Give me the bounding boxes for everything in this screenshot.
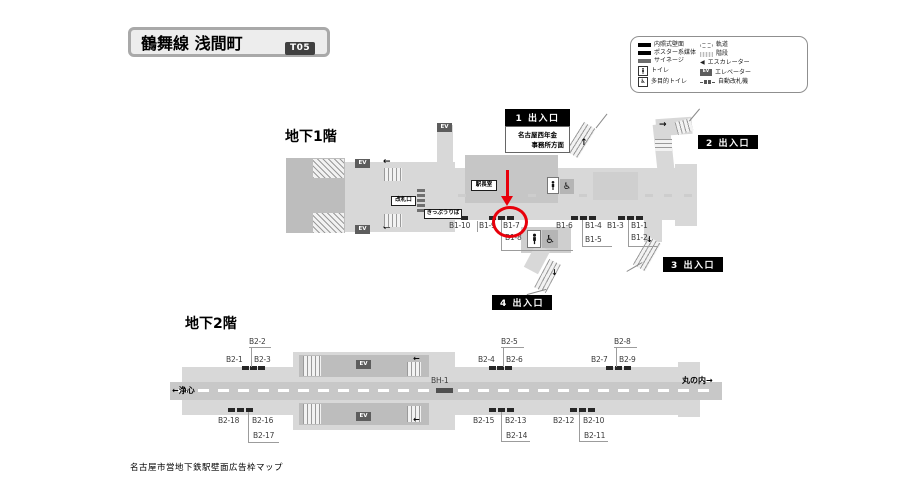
legend-item: ♿多目的トイレ — [638, 77, 687, 87]
accessible-toilet-icon: ♿ — [560, 179, 574, 194]
label-leader-line — [501, 441, 530, 442]
toilet-icon — [527, 230, 541, 248]
ad-position-mark — [242, 366, 249, 370]
stairs-hatch — [655, 139, 672, 151]
title-box: 鶴舞線 浅間町 T05 — [128, 27, 330, 57]
ticket-gate-bar — [417, 204, 425, 207]
ad-position-mark — [624, 366, 631, 370]
label-leader-line — [249, 347, 271, 348]
legend-item: 階段 — [700, 51, 728, 57]
label-leader-line — [614, 347, 637, 348]
ticket-gate-bar — [417, 189, 425, 192]
label-leader-line — [579, 412, 580, 442]
ad-position-mark — [580, 216, 587, 220]
ad-position-mark — [570, 408, 577, 412]
stairs-hatch — [384, 214, 402, 227]
ad-label-b1-2: B1-2 — [631, 234, 648, 242]
label-leader-line — [248, 412, 249, 443]
ad-position-mark — [237, 408, 244, 412]
toilet-icon — [638, 66, 648, 76]
pillar-mark — [645, 194, 653, 197]
ad-label-b2-15: B2-15 — [473, 417, 494, 425]
elevator-box: EV — [356, 412, 371, 421]
ad-position-mark — [606, 366, 613, 370]
ad-label-b2-9: B2-9 — [619, 356, 636, 364]
direction-label-left: ←浄心 — [172, 387, 195, 395]
stairs-hatch — [313, 159, 344, 178]
ad-label-b1-1: B1-1 — [631, 222, 648, 230]
highlight-arrow-shaft — [506, 170, 509, 197]
ad-label-b2-6: B2-6 — [506, 356, 523, 364]
ad-label-b2-13: B2-13 — [505, 417, 526, 425]
ad-label-b1-6: B1-6 — [556, 222, 573, 230]
elevator-box: EV — [437, 123, 452, 132]
signage-icon — [638, 59, 651, 63]
label-leader-line — [503, 347, 504, 367]
ad-position-mark — [246, 408, 253, 412]
legend-item: サイネージ — [638, 58, 684, 64]
track-icon — [700, 43, 713, 48]
legend-item: ポスター系媒体 — [638, 50, 696, 56]
stairs-edge-line — [596, 114, 608, 129]
accessible-toilet-icon: ♿ — [542, 230, 558, 248]
ticket-gate-bar — [417, 194, 425, 197]
label-leader-line — [477, 221, 478, 232]
exit-1-box: 1 出入口 — [505, 109, 570, 126]
elevator-box: EV — [355, 225, 370, 234]
label-leader-line — [251, 347, 252, 367]
label-leader-line — [628, 220, 629, 247]
label-leader-line — [582, 220, 583, 247]
escalator-arrow-icon: ← — [413, 416, 420, 424]
stairs-arrow-icon: ↑ — [580, 139, 588, 148]
ad-label-b2-5: B2-5 — [501, 338, 518, 346]
stairs-arrow-icon: ↓ — [551, 269, 558, 277]
station-office-label: 駅長室 — [471, 180, 497, 191]
label-leader-line — [501, 347, 524, 348]
exit-3-box: 3 出入口 — [663, 257, 723, 272]
footer-note: 名古屋市営地下鉄駅壁面広告枠マップ — [130, 464, 283, 473]
ad-label-b2-12: B2-12 — [553, 417, 574, 425]
ad-position-mark — [505, 366, 512, 370]
legend-item: 自動改札機 — [700, 79, 748, 85]
legend: 内照式壁面 ポスター系媒体 サイネージ トイレ ♿多目的トイレ 軌道 階段 ◀エ… — [630, 36, 808, 93]
label-leader-line — [501, 412, 502, 442]
ad-label-b2-11: B2-11 — [584, 432, 605, 440]
ticket-gates-icon — [700, 80, 715, 84]
ad-label-b2-4: B2-4 — [478, 356, 495, 364]
label-leader-line — [582, 246, 612, 247]
ad-position-mark — [579, 408, 586, 412]
elevator-box: EV — [356, 360, 371, 369]
pillar-mark — [528, 194, 536, 197]
label-leader-line — [248, 442, 279, 443]
stairs-hatch — [303, 404, 321, 424]
ad-position-mark — [489, 366, 496, 370]
b1-room-block — [593, 172, 638, 200]
escalator-arrow-icon: → — [659, 121, 667, 130]
pillar-mark — [684, 194, 692, 197]
pillar-mark — [579, 194, 587, 197]
direction-label-right: 丸の内→ — [682, 377, 713, 385]
pillar-mark — [664, 194, 672, 197]
ticket-counter-label: きっぷうりば — [424, 209, 462, 219]
label-leader-line — [628, 246, 658, 247]
ad-position-mark — [636, 216, 643, 220]
legend-item: EVエレベーター — [700, 69, 751, 76]
station-code-badge: T05 — [285, 42, 315, 55]
ad-position-mark — [461, 216, 468, 220]
ad-position-mark — [489, 408, 496, 412]
illuminated-wall-icon — [638, 43, 651, 47]
ad-label-b2-10: B2-10 — [583, 417, 604, 425]
toilet-icon — [547, 177, 559, 194]
label-leader-line — [616, 347, 617, 367]
escalator-arrow-icon: ← — [383, 158, 391, 167]
ad-position-mark — [498, 408, 505, 412]
elevator-icon: EV — [700, 69, 712, 76]
pillar-mark — [458, 194, 466, 197]
ad-label-b1-4: B1-4 — [585, 222, 602, 230]
escalator-arrow-icon: ← — [413, 355, 420, 363]
legend-item: ◀エスカレーター — [700, 60, 750, 66]
ad-label-b2-8: B2-8 — [614, 338, 631, 346]
stairs-hatch — [384, 168, 402, 181]
page-title: 鶴舞線 浅間町 — [141, 30, 243, 54]
ad-position-mark — [589, 216, 596, 220]
ad-label-b2-2: B2-2 — [249, 338, 266, 346]
label-leader-line — [501, 250, 573, 251]
elevator-box: EV — [355, 159, 370, 168]
stairs-edge-line — [689, 109, 700, 122]
ad-label-bh-1: BH-1 — [431, 377, 448, 385]
stairs-hatch — [407, 362, 421, 376]
ad-label-b2-7: B2-7 — [591, 356, 608, 364]
stairs-hatch — [313, 213, 344, 233]
ad-position-mark — [618, 216, 625, 220]
exit-2-box: 2 出入口 — [698, 135, 758, 149]
ticket-gate-label: 改札口 — [391, 196, 416, 206]
ad-label-b1-10: B1-10 — [449, 222, 470, 230]
exit-4-box: 4 出入口 — [492, 295, 552, 310]
accessible-toilet-icon: ♿ — [638, 77, 648, 87]
escalator-icon: ◀ — [700, 60, 705, 66]
ad-position-mark — [507, 408, 514, 412]
ad-label-b2-18: B2-18 — [218, 417, 239, 425]
legend-item: 内照式壁面 — [638, 42, 684, 48]
ad-label-b2-16: B2-16 — [252, 417, 273, 425]
poster-media-icon — [638, 51, 651, 55]
legend-item: トイレ — [638, 66, 669, 76]
b1-floor-title: 地下1階 — [285, 130, 337, 144]
ad-position-mark — [588, 408, 595, 412]
ad-position-mark — [627, 216, 634, 220]
stairs-hatch — [303, 356, 321, 376]
b2-floor-title: 地下2階 — [185, 317, 237, 331]
ad-position-mark — [228, 408, 235, 412]
ad-position-mark — [258, 366, 265, 370]
highlight-circle — [492, 206, 528, 238]
ad-position-mark — [571, 216, 578, 220]
ticket-gate-bar — [417, 199, 425, 202]
ad-label-b2-3: B2-3 — [254, 356, 271, 364]
stairs-icon — [700, 52, 713, 57]
ad-label-b2-17: B2-17 — [253, 432, 274, 440]
ad-label-b2-14: B2-14 — [506, 432, 527, 440]
station-ad-map: 鶴舞線 浅間町 T05 内照式壁面 ポスター系媒体 サイネージ トイレ ♿多目的… — [0, 0, 919, 491]
exit-1-destination-note: 名古屋西年金事務所方面 — [505, 126, 570, 153]
ad-label-b2-1: B2-1 — [226, 356, 243, 364]
legend-item: 軌道 — [700, 42, 728, 48]
label-leader-line — [579, 441, 608, 442]
ad-position-mark-bh1 — [436, 388, 453, 393]
ad-label-b1-3: B1-3 — [607, 222, 624, 230]
ad-label-b1-5: B1-5 — [585, 236, 602, 244]
highlight-arrow-head-icon — [501, 196, 513, 206]
